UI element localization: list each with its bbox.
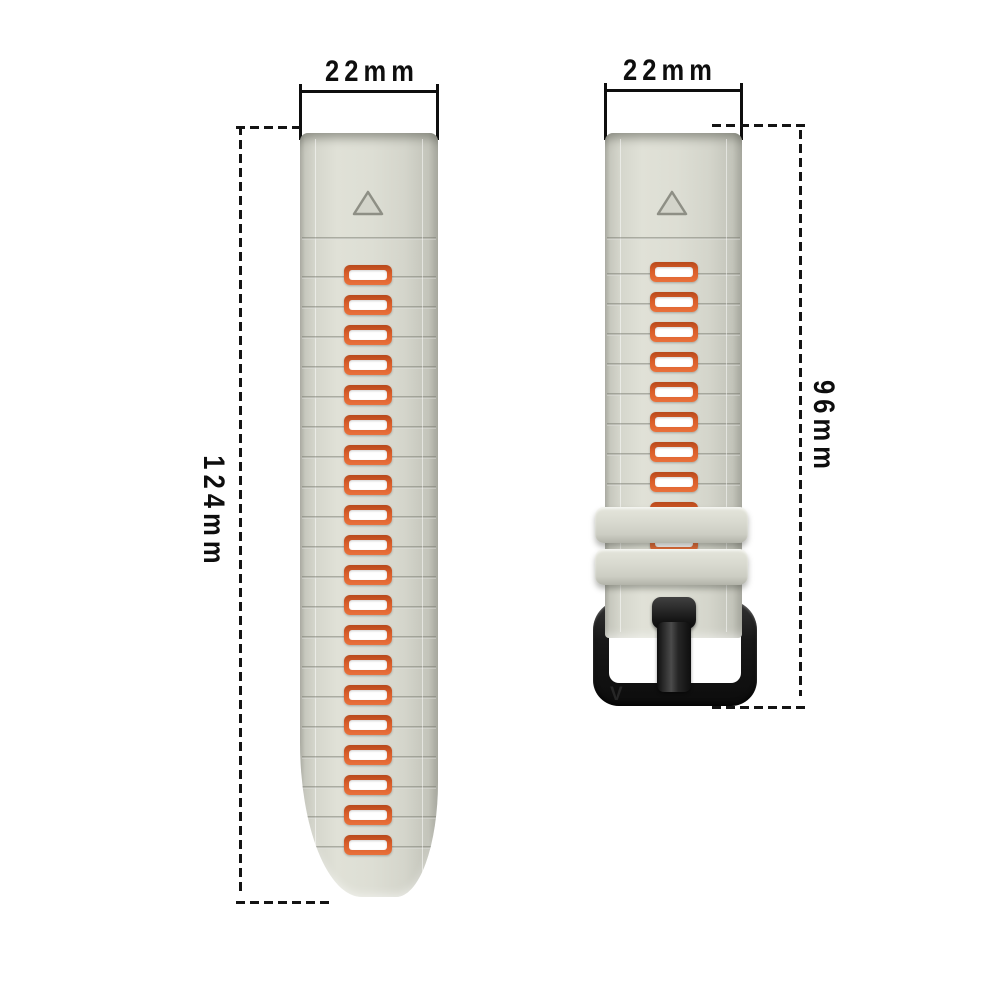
strap-hole xyxy=(344,415,392,435)
strap-hole xyxy=(344,475,392,495)
strap-groove xyxy=(302,237,436,240)
left-width-tick-start xyxy=(299,84,302,140)
strap-hole xyxy=(650,262,698,282)
left-strap xyxy=(300,133,438,897)
buckle-tang xyxy=(657,622,691,692)
watch-strap-size-diagram: 22mm 22mm 124mm 96mm V xyxy=(0,0,1000,1000)
strap-hole xyxy=(650,292,698,312)
strap-hole xyxy=(344,805,392,825)
right-strap-length-label: 96mm xyxy=(806,380,840,474)
strap-hole xyxy=(344,595,392,615)
strap-hole xyxy=(344,625,392,645)
left-length-dimension-line xyxy=(239,126,242,894)
strap-hole xyxy=(344,265,392,285)
strap-hole xyxy=(344,385,392,405)
strap-hole xyxy=(650,412,698,432)
strap-hole xyxy=(344,325,392,345)
strap-hole xyxy=(344,745,392,765)
strap-hole xyxy=(650,382,698,402)
alignment-triangle-icon xyxy=(350,188,386,218)
strap-hole xyxy=(344,565,392,585)
strap-hole xyxy=(344,715,392,735)
strap-hole xyxy=(344,685,392,705)
strap-hole xyxy=(344,295,392,315)
left-strap-width-label: 22mm xyxy=(325,55,419,89)
strap-hole xyxy=(344,445,392,465)
strap-hole xyxy=(344,505,392,525)
buckle-logo: V xyxy=(610,684,623,706)
right-length-dimension-line xyxy=(799,130,802,696)
left-strap-length-label: 124mm xyxy=(196,455,230,568)
strap-hole xyxy=(344,355,392,375)
right-width-tick-start xyxy=(604,83,607,140)
right-length-extension-bottom xyxy=(712,706,807,709)
strap-hole xyxy=(344,835,392,855)
strap-keeper xyxy=(595,549,748,585)
strap-keeper xyxy=(595,507,748,543)
strap-hole xyxy=(344,655,392,675)
right-strap-width-label: 22mm xyxy=(623,54,717,88)
left-length-extension-top xyxy=(236,126,300,129)
right-width-tick-end xyxy=(740,83,743,140)
right-width-dimension-line xyxy=(605,89,743,92)
left-width-dimension-line xyxy=(300,90,439,93)
strap-hole xyxy=(650,442,698,462)
strap-hole xyxy=(344,535,392,555)
left-length-extension-bottom xyxy=(236,901,333,904)
strap-hole xyxy=(650,322,698,342)
strap-hole xyxy=(344,775,392,795)
left-width-tick-end xyxy=(436,84,439,140)
strap-hole xyxy=(650,352,698,372)
strap-hole xyxy=(650,472,698,492)
right-length-extension-top xyxy=(712,124,808,127)
alignment-triangle-icon xyxy=(654,188,690,218)
strap-groove xyxy=(607,237,740,240)
